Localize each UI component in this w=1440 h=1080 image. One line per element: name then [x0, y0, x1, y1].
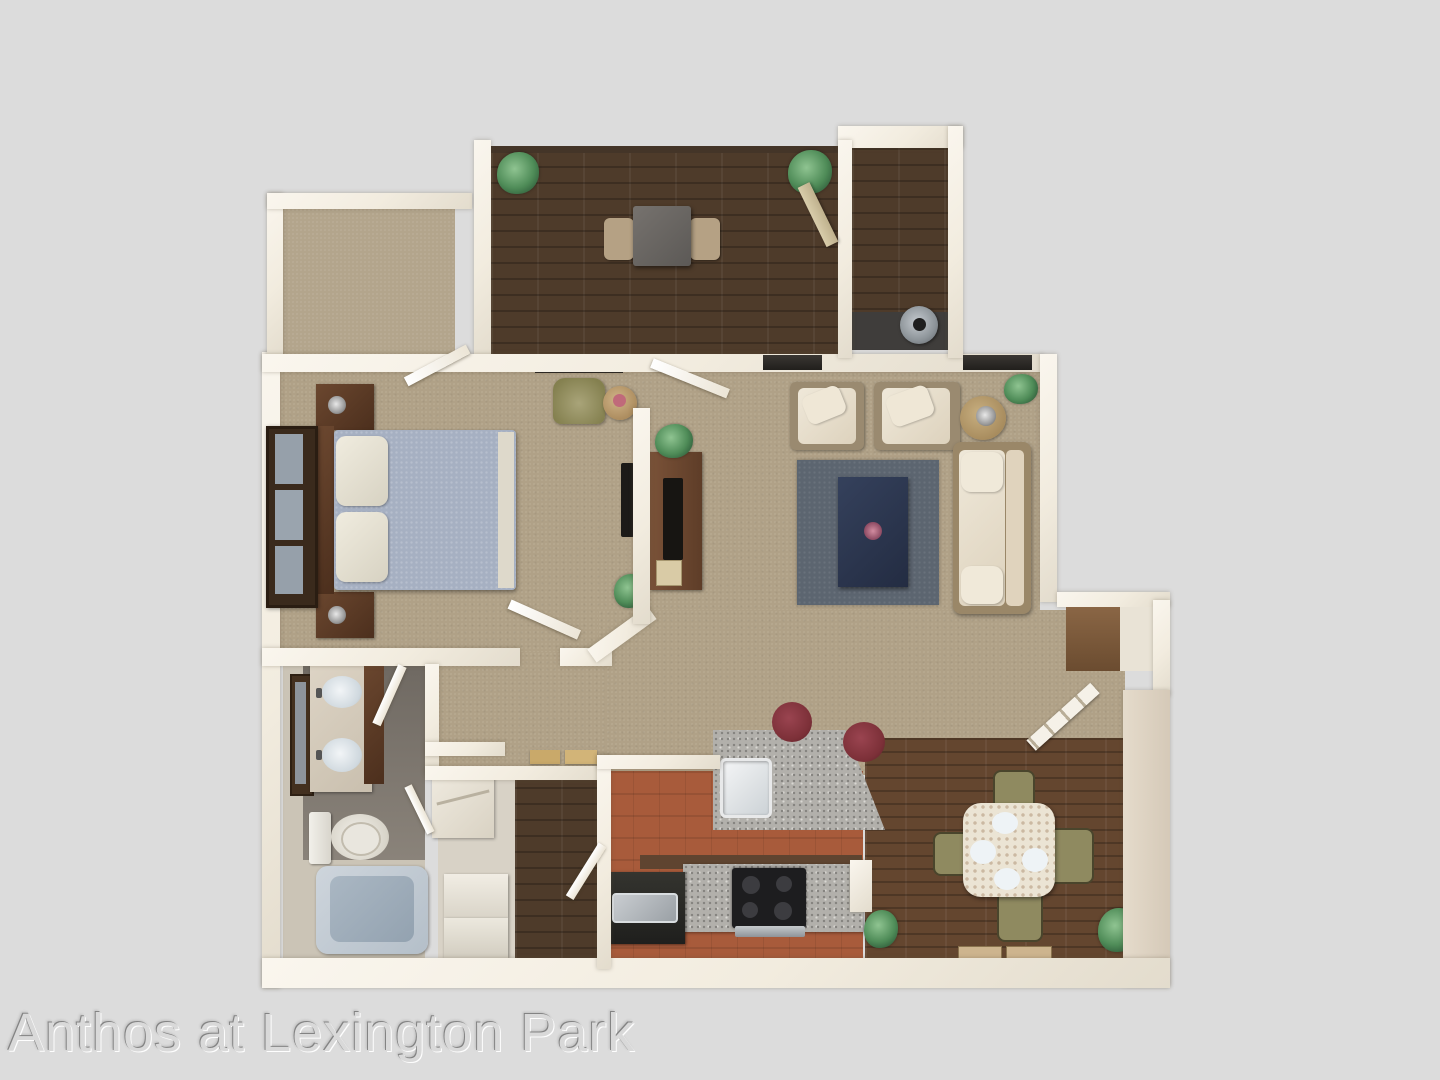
sofa-pillow: [961, 452, 1003, 492]
den-chair: [604, 218, 634, 260]
bed-pillow: [336, 512, 388, 582]
wall-bottom-outer: [262, 958, 1170, 988]
vanity-sink-1: [322, 676, 362, 708]
faucet-icon: [316, 750, 322, 760]
entry-closet-floor: [1120, 607, 1156, 671]
closet-floor: [283, 208, 455, 354]
bedroom-chair: [553, 378, 605, 424]
wall-dining-right: [1123, 690, 1170, 986]
floor-plan-canvas: Anthos at Lexington Park: [0, 0, 1440, 1080]
wall-closet-left: [267, 193, 283, 361]
living-window: [763, 355, 822, 370]
oven-handle: [735, 926, 805, 937]
bedroom-window-pane: [275, 546, 303, 594]
living-corner-plant: [1004, 374, 1038, 404]
cooktop-burner: [742, 876, 760, 894]
wall-den-left: [474, 140, 491, 362]
faucet-icon: [316, 688, 322, 698]
wall-laundry-top: [425, 766, 605, 780]
wall-kitchen-top: [597, 755, 720, 769]
table-lamp: [976, 406, 996, 426]
wall-living-right: [1040, 354, 1057, 602]
prep-sink: [612, 893, 678, 923]
dining-plate: [994, 868, 1020, 890]
desk-keyboard: [656, 560, 682, 586]
wall-patio-left: [838, 140, 852, 358]
bed-pillow: [336, 436, 388, 506]
cooktop-burner: [742, 902, 758, 918]
bathtub-basin: [330, 876, 414, 942]
toilet-seat-ring: [341, 822, 381, 856]
dining-chair-south: [997, 890, 1043, 942]
dining-plant-left: [864, 910, 898, 948]
side-table-flowers: [613, 394, 626, 407]
dryer: [444, 918, 508, 958]
bedside-lamp: [328, 606, 346, 624]
bathroom-mirror-glass: [295, 682, 306, 784]
wall-closet-top: [267, 193, 472, 209]
dining-plate: [1022, 848, 1048, 872]
vanity-sink-2: [322, 738, 362, 772]
wall-bath-vestibule: [425, 742, 505, 756]
cooktop: [732, 868, 806, 928]
bedside-lamp: [328, 396, 346, 414]
desk-plant: [655, 424, 693, 458]
bedroom-window-pane: [275, 490, 303, 540]
bed-foot-throw: [498, 432, 514, 588]
bar-stool: [843, 722, 885, 762]
wall-entry-right: [1153, 600, 1170, 696]
wall-bedroom-bottom: [262, 648, 520, 666]
entry-closet-interior: [1066, 607, 1120, 671]
sofa-back-cushion: [1006, 450, 1024, 606]
den-chair: [690, 218, 720, 260]
wall-bedroom-right: [633, 408, 650, 624]
bar-stool: [772, 702, 812, 742]
cooktop-burner: [774, 902, 792, 920]
kitchen-wall-nib: [850, 860, 872, 912]
wall-patio-top: [838, 126, 963, 148]
patio-grill-center: [913, 318, 926, 331]
wall-patio-right: [948, 126, 963, 358]
wall-laundry-right: [597, 755, 611, 969]
dining-plate: [970, 840, 996, 864]
bedroom-window-pane: [275, 434, 303, 484]
toilet-tank: [309, 812, 331, 864]
den-railing: [491, 146, 838, 153]
dining-plate: [992, 812, 1018, 834]
desk-monitor: [663, 478, 683, 560]
laundry-shelf-unit: [432, 772, 494, 838]
coffee-table-flowers: [864, 522, 882, 540]
hall-mat: [530, 750, 560, 764]
washer: [444, 874, 508, 918]
living-window: [963, 355, 1032, 370]
wall-bath-right: [425, 664, 439, 774]
cooktop-burner: [776, 876, 792, 892]
sofa-pillow: [961, 566, 1003, 604]
headboard: [318, 426, 334, 594]
den-plant-left: [497, 152, 539, 194]
peninsula-sink: [720, 758, 772, 818]
watermark-text: Anthos at Lexington Park: [8, 1002, 635, 1064]
hall-mat: [565, 750, 597, 764]
den-table: [633, 206, 691, 266]
